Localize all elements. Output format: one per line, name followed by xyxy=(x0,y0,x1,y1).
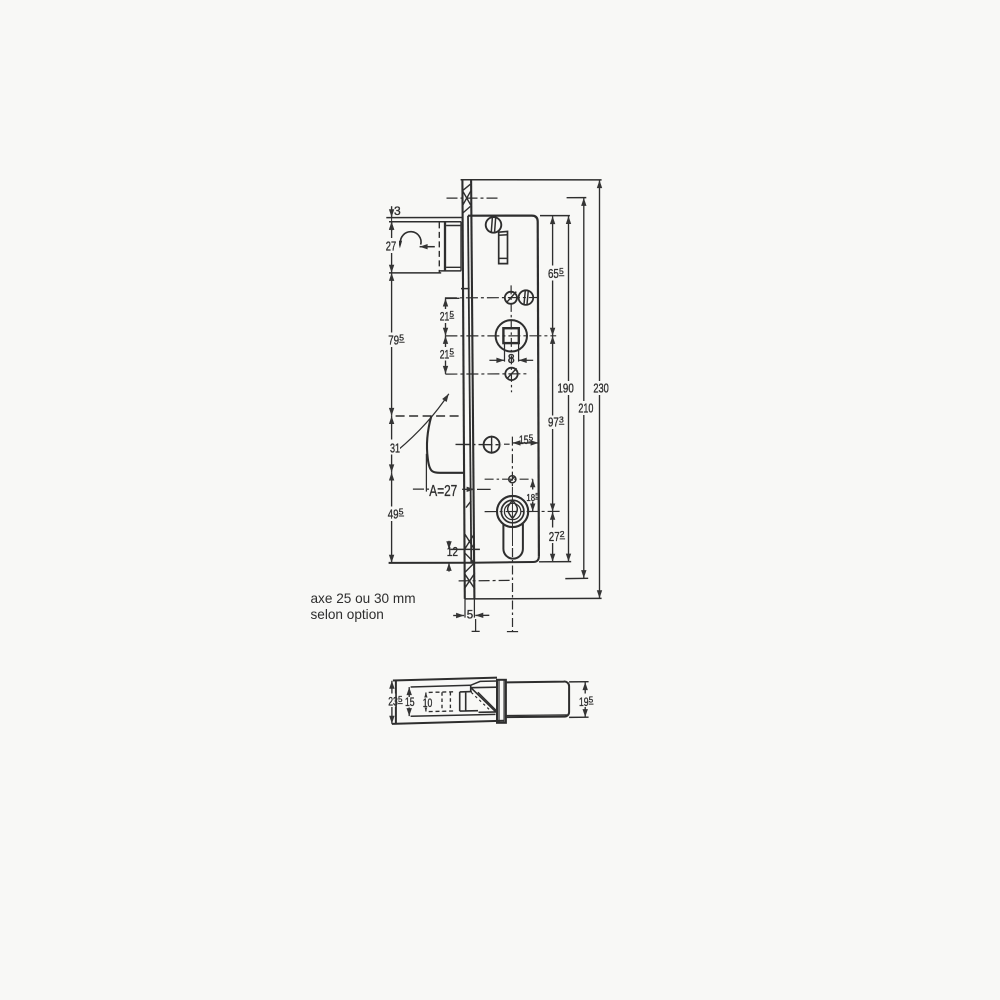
svg-text:A=27: A=27 xyxy=(429,481,457,499)
svg-text:5: 5 xyxy=(559,266,564,276)
svg-text:3: 3 xyxy=(559,415,564,425)
svg-text:27: 27 xyxy=(386,240,396,254)
svg-text:5: 5 xyxy=(450,310,455,319)
svg-text:27: 27 xyxy=(549,531,560,544)
svg-text:12: 12 xyxy=(447,545,458,559)
svg-text:190: 190 xyxy=(558,382,574,395)
svg-text:65: 65 xyxy=(548,268,559,281)
svg-text:2: 2 xyxy=(560,529,565,539)
svg-text:18: 18 xyxy=(526,492,535,503)
svg-text:5: 5 xyxy=(399,506,404,516)
svg-text:5: 5 xyxy=(529,433,534,442)
svg-text:21: 21 xyxy=(440,311,450,323)
svg-text:3: 3 xyxy=(394,204,401,218)
svg-text:8: 8 xyxy=(508,352,515,366)
svg-text:31: 31 xyxy=(390,442,400,456)
svg-text:21: 21 xyxy=(440,349,450,361)
svg-text:230: 230 xyxy=(593,382,608,396)
svg-text:5: 5 xyxy=(398,695,403,704)
svg-text:49: 49 xyxy=(388,508,399,521)
svg-text:23: 23 xyxy=(388,697,398,709)
svg-text:5: 5 xyxy=(589,696,594,705)
svg-text:19: 19 xyxy=(579,697,589,709)
svg-text:97: 97 xyxy=(548,416,559,429)
svg-text:15: 15 xyxy=(519,435,529,447)
svg-text:10: 10 xyxy=(423,698,433,710)
svg-text:5: 5 xyxy=(399,333,404,343)
svg-text:5: 5 xyxy=(450,348,455,357)
svg-text:5: 5 xyxy=(467,610,473,622)
svg-text:15: 15 xyxy=(405,697,415,709)
svg-text:210: 210 xyxy=(578,402,593,416)
svg-text:79: 79 xyxy=(388,334,399,347)
